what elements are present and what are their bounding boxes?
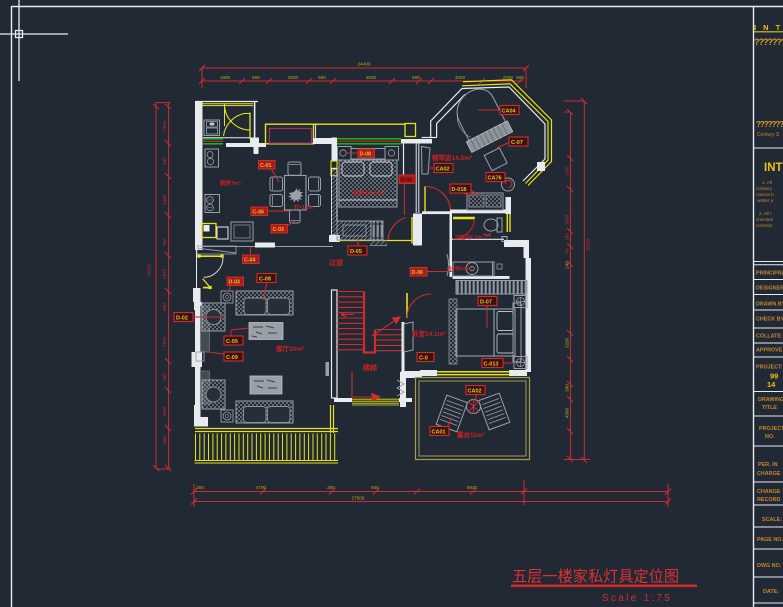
svg-text:3200: 3200 bbox=[565, 337, 570, 348]
svg-text:1. All: 1. All bbox=[762, 180, 772, 185]
svg-text:writter p: writter p bbox=[757, 198, 774, 203]
svg-text:PROJECT:: PROJECT: bbox=[756, 365, 783, 371]
svg-text:DWG NO.: DWG NO. bbox=[757, 563, 782, 569]
svg-text:主卧15.5m²: 主卧15.5m² bbox=[352, 188, 386, 197]
svg-text:4700: 4700 bbox=[256, 485, 267, 490]
svg-text:CA02: CA02 bbox=[436, 167, 450, 173]
svg-text:D-02: D-02 bbox=[176, 316, 188, 322]
svg-text:900: 900 bbox=[318, 75, 326, 80]
svg-text:600: 600 bbox=[371, 485, 379, 490]
svg-text:D-06: D-06 bbox=[412, 270, 424, 276]
svg-text:1800: 1800 bbox=[220, 75, 231, 80]
svg-text:C-03: C-03 bbox=[273, 227, 285, 233]
svg-text:CA04: CA04 bbox=[502, 109, 517, 115]
svg-text:2400: 2400 bbox=[162, 194, 167, 205]
svg-text:CHANGE: CHANGE bbox=[757, 489, 781, 495]
svg-text:1500: 1500 bbox=[162, 406, 167, 417]
svg-text:洗手间4.5m²: 洗手间4.5m² bbox=[447, 265, 473, 272]
svg-text:2370: 2370 bbox=[162, 336, 167, 347]
svg-text:390: 390 bbox=[565, 384, 570, 392]
svg-text:卫生间4.7m²: 卫生间4.7m² bbox=[455, 234, 483, 241]
svg-text:DRAWN BY: DRAWN BY bbox=[756, 302, 783, 308]
svg-text:APPROVE:: APPROVE: bbox=[756, 348, 783, 354]
svg-text:300: 300 bbox=[327, 485, 335, 490]
svg-text:厨房7m²: 厨房7m² bbox=[220, 179, 241, 187]
svg-text:卧室14.1m²: 卧室14.1m² bbox=[412, 329, 446, 338]
svg-text:C-01: C-01 bbox=[260, 163, 272, 169]
svg-text:600: 600 bbox=[162, 157, 167, 165]
svg-text:Scale 1:75: Scale 1:75 bbox=[602, 593, 672, 604]
svg-text:D-08: D-08 bbox=[360, 152, 372, 158]
svg-text:SCALE:: SCALE: bbox=[762, 517, 782, 523]
svg-text:DESIGNER: DESIGNER bbox=[756, 286, 783, 292]
svg-text:240: 240 bbox=[565, 261, 570, 269]
svg-text:180: 180 bbox=[565, 233, 570, 241]
svg-text:4300: 4300 bbox=[565, 407, 570, 418]
svg-text:C-06: C-06 bbox=[253, 210, 265, 216]
svg-text:2970: 2970 bbox=[162, 268, 167, 279]
svg-text:contract: contract bbox=[756, 223, 773, 228]
svg-text:DRAWING: DRAWING bbox=[758, 397, 783, 403]
svg-text:2700: 2700 bbox=[503, 75, 514, 80]
svg-text:DATE:: DATE: bbox=[763, 589, 779, 595]
svg-text:600: 600 bbox=[516, 75, 524, 80]
svg-text:COLLATE:: COLLATE: bbox=[756, 334, 783, 340]
svg-text:Century S: Century S bbox=[757, 132, 780, 138]
svg-text:D-07: D-07 bbox=[480, 300, 492, 306]
svg-text:1800: 1800 bbox=[565, 214, 570, 225]
svg-text:2500: 2500 bbox=[288, 75, 299, 80]
svg-text:?????????: ????????? bbox=[754, 37, 783, 47]
svg-text:24400: 24400 bbox=[358, 62, 371, 67]
svg-text:INT: INT bbox=[764, 162, 783, 174]
svg-text:17508: 17508 bbox=[352, 496, 365, 501]
svg-text:五层一楼家私灯具定位图: 五层一楼家私灯具定位图 bbox=[512, 569, 679, 586]
svg-text:????????: ???????? bbox=[756, 120, 783, 129]
svg-text:90: 90 bbox=[565, 248, 570, 254]
svg-text:钢琴房14.5m²: 钢琴房14.5m² bbox=[432, 153, 473, 162]
svg-text:I N T E R: I N T E R bbox=[754, 23, 783, 32]
svg-text:16200: 16200 bbox=[147, 263, 152, 276]
svg-text:灯=1.3m: 灯=1.3m bbox=[294, 204, 314, 211]
svg-text:C-0: C-0 bbox=[419, 356, 428, 362]
svg-text:D-05: D-05 bbox=[350, 249, 362, 255]
svg-text:CA02: CA02 bbox=[468, 389, 482, 395]
svg-text:PROJECT: PROJECT bbox=[759, 426, 783, 432]
svg-text:PRINCIPAL: PRINCIPAL bbox=[756, 271, 783, 277]
svg-text:CHECK BY: CHECK BY bbox=[756, 317, 783, 323]
svg-text:2400: 2400 bbox=[565, 165, 570, 176]
svg-text:D-04: D-04 bbox=[401, 178, 413, 184]
svg-text:C-08: C-08 bbox=[259, 277, 271, 283]
svg-text:C-09: C-09 bbox=[226, 355, 238, 361]
svg-text:600: 600 bbox=[252, 75, 260, 80]
svg-text:C-013: C-013 bbox=[484, 362, 499, 368]
svg-text:6930: 6930 bbox=[467, 485, 478, 490]
svg-text:14: 14 bbox=[767, 380, 776, 389]
svg-text:露台11m²: 露台11m² bbox=[457, 430, 486, 439]
svg-text:过道: 过道 bbox=[329, 258, 343, 267]
svg-text:16200: 16200 bbox=[586, 238, 591, 251]
svg-text:300: 300 bbox=[196, 485, 204, 490]
svg-text:600: 600 bbox=[412, 75, 420, 80]
svg-text:客厅30m²: 客厅30m² bbox=[275, 344, 305, 353]
svg-text:CHARGE: CHARGE bbox=[757, 471, 781, 477]
svg-text:C-07: C-07 bbox=[511, 140, 523, 146]
svg-text:NO.: NO. bbox=[765, 434, 775, 440]
svg-text:950: 950 bbox=[162, 238, 167, 246]
svg-text:cannot b: cannot b bbox=[756, 192, 774, 197]
svg-text:C-04: C-04 bbox=[244, 258, 256, 264]
svg-text:D-018: D-018 bbox=[452, 187, 467, 193]
svg-text:3000: 3000 bbox=[455, 75, 466, 80]
svg-text:900: 900 bbox=[162, 373, 167, 381]
svg-text:PER. IN: PER. IN bbox=[758, 462, 778, 468]
svg-text:2500: 2500 bbox=[366, 75, 377, 80]
svg-text:600: 600 bbox=[162, 303, 167, 311]
svg-text:Century: Century bbox=[756, 186, 773, 191]
svg-text:600: 600 bbox=[162, 436, 167, 444]
svg-text:C-05: C-05 bbox=[226, 339, 238, 345]
svg-text:楼梯: 楼梯 bbox=[363, 363, 377, 372]
svg-text:1500: 1500 bbox=[162, 120, 167, 131]
svg-text:CA76: CA76 bbox=[488, 176, 502, 182]
svg-text:CA01: CA01 bbox=[432, 430, 446, 436]
svg-text:checked: checked bbox=[756, 217, 774, 222]
svg-text:D-03: D-03 bbox=[229, 280, 241, 286]
svg-text:RECORD: RECORD bbox=[757, 497, 780, 503]
svg-text:TITLE: TITLE bbox=[762, 405, 777, 411]
svg-text:2. All r: 2. All r bbox=[759, 211, 772, 216]
svg-text:PAGE NO.: PAGE NO. bbox=[757, 537, 783, 543]
